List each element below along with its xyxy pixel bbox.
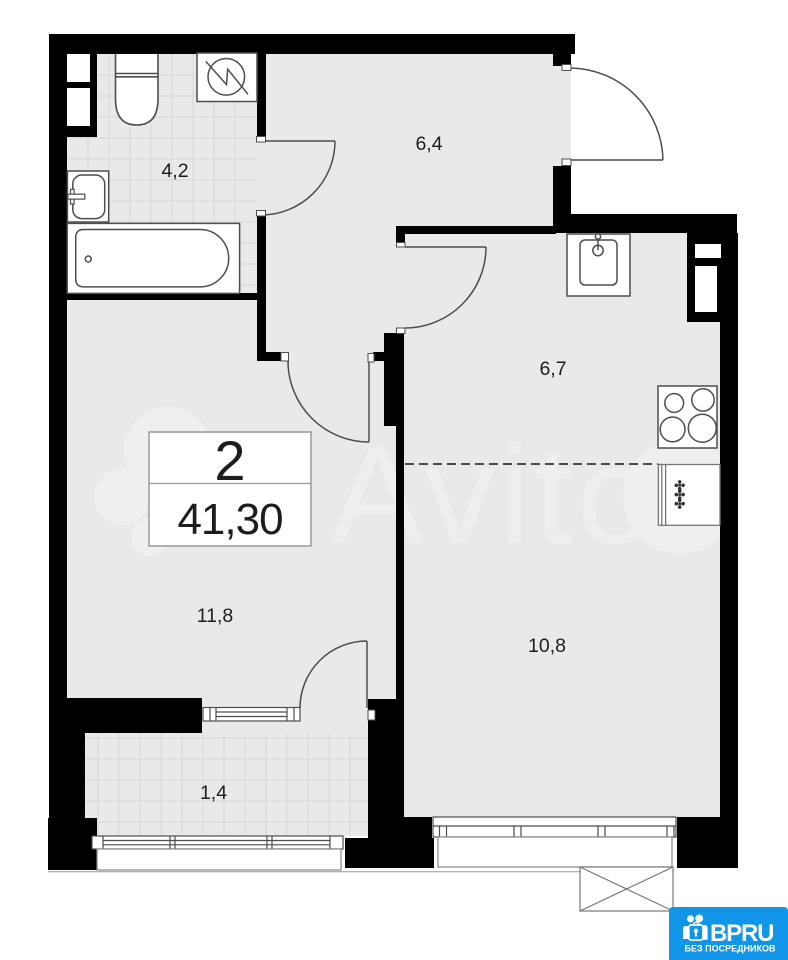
svg-text:11,8: 11,8 xyxy=(197,605,234,627)
svg-text:4,2: 4,2 xyxy=(161,160,188,182)
svg-text:41,30: 41,30 xyxy=(177,495,282,544)
svg-text:10,8: 10,8 xyxy=(528,635,566,657)
svg-text:2: 2 xyxy=(214,429,245,492)
svg-text:БЕЗ ПОСРЕДНИКОВ: БЕЗ ПОСРЕДНИКОВ xyxy=(685,943,776,953)
svg-text:6,7: 6,7 xyxy=(539,358,566,380)
svg-text:6,4: 6,4 xyxy=(415,133,442,155)
svg-text:Avito: Avito xyxy=(330,416,659,573)
svg-text:1,4: 1,4 xyxy=(200,782,227,804)
